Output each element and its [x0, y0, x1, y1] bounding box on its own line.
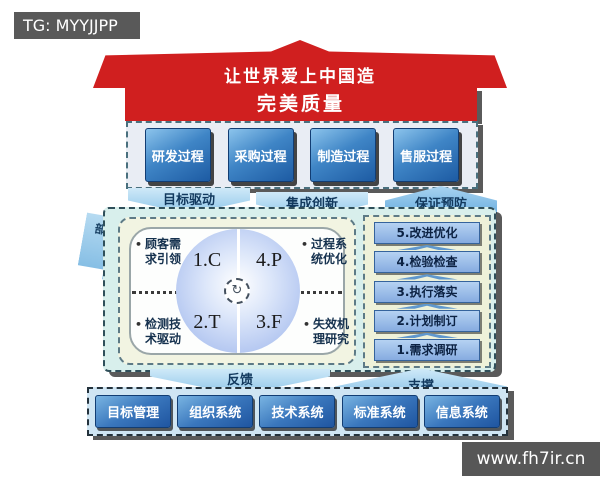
step-inspect: 4.检验检查 — [374, 251, 480, 273]
core-panel: 1.C 4.P 2.T 3.F ↻ • 顾客需求引领 • 过程系统优化 • 检测… — [103, 207, 496, 372]
chevron-up-icon — [396, 304, 457, 309]
feedback-label: 反馈 — [227, 373, 253, 388]
systems-strip: 目标管理 组织系统 技术系统 标准系统 信息系统 — [87, 387, 508, 436]
process-strip: 研发过程 采购过程 制造过程 售服过程 — [126, 121, 478, 189]
label-customer-demand: • 顾客需求引领 — [135, 237, 181, 267]
chevron-up-icon — [396, 333, 457, 338]
label-testing-tech-text: 检测技术驱动 — [145, 317, 181, 347]
bullet-icon: • — [303, 317, 310, 347]
process-box-procurement: 采购过程 — [228, 128, 294, 182]
roof-slogan: 让世界爱上中国造 — [93, 62, 507, 87]
system-information: 信息系统 — [424, 395, 500, 428]
label-process-optimization-text: 过程系统优化 — [311, 237, 347, 267]
line2: 理研究 — [313, 332, 349, 346]
process-box-rd: 研发过程 — [145, 128, 211, 182]
quality-banner: 完美质量 — [125, 88, 477, 121]
system-organization: 组织系统 — [177, 395, 253, 428]
process-box-manufacturing: 制造过程 — [310, 128, 376, 182]
system-goal-management: 目标管理 — [95, 395, 171, 428]
label-customer-demand-text: 顾客需求引领 — [145, 237, 181, 267]
site-watermark: www.fh7ir.cn — [462, 442, 600, 476]
sector-3f: 3.F — [238, 291, 300, 353]
chevron-up-icon — [396, 245, 457, 250]
line1: 失效机 — [313, 317, 349, 331]
step-research: 1.需求调研 — [374, 339, 480, 361]
label-failure-mechanism-text: 失效机理研究 — [313, 317, 349, 347]
system-technology: 技术系统 — [259, 395, 335, 428]
diagram-canvas: { "watermarks": { "tag": "TG: MYYJJPP", … — [0, 0, 600, 480]
bullet-icon: • — [135, 317, 142, 347]
line2: 求引领 — [145, 252, 181, 266]
step-improve: 5.改进优化 — [374, 222, 480, 244]
label-testing-tech: • 检测技术驱动 — [135, 317, 181, 347]
bullet-icon: • — [135, 237, 142, 267]
process-box-service: 售服过程 — [393, 128, 459, 182]
cycle-arrows-icon: ↻ — [224, 278, 250, 304]
step-plan: 2.计划制订 — [374, 310, 480, 332]
steps-panel: 5.改进优化 4.检验检查 3.执行落实 2.计划制订 1.需求调研 — [363, 215, 491, 368]
line2: 统优化 — [311, 252, 347, 266]
channel-watermark: TG: MYYJJPP — [14, 12, 140, 39]
line1: 检测技 — [145, 317, 181, 331]
roof-shape: 让世界爱上中国造 — [93, 40, 507, 88]
quadrant-panel: 1.C 4.P 2.T 3.F ↻ • 顾客需求引领 • 过程系统优化 • 检测… — [118, 217, 356, 365]
line2: 术驱动 — [145, 332, 181, 346]
label-failure-mechanism: • 失效机理研究 — [303, 317, 349, 347]
bullet-icon: • — [301, 237, 308, 267]
line1: 过程系 — [311, 237, 347, 251]
sector-4p: 4.P — [238, 229, 300, 291]
line1: 顾客需 — [145, 237, 181, 251]
system-standards: 标准系统 — [342, 395, 418, 428]
label-process-optimization: • 过程系统优化 — [301, 237, 347, 267]
step-execute: 3.执行落实 — [374, 281, 480, 303]
chevron-up-icon — [396, 274, 457, 279]
